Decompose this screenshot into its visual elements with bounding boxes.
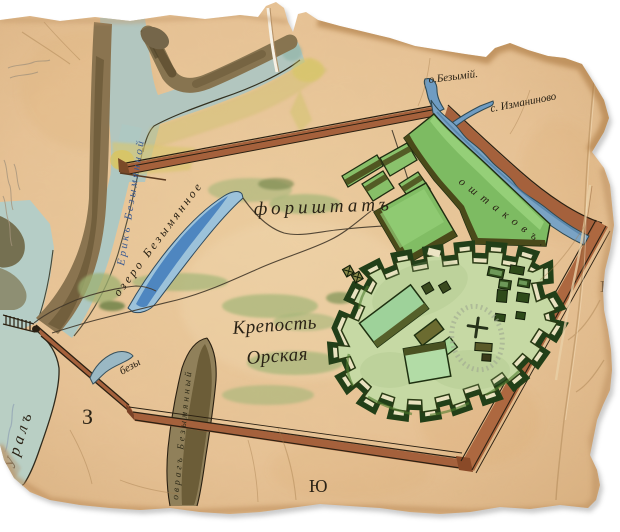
svg-text:Орская: Орская [246,344,309,369]
svg-text:Ю: Ю [309,476,328,496]
svg-text:З: З [82,404,93,429]
